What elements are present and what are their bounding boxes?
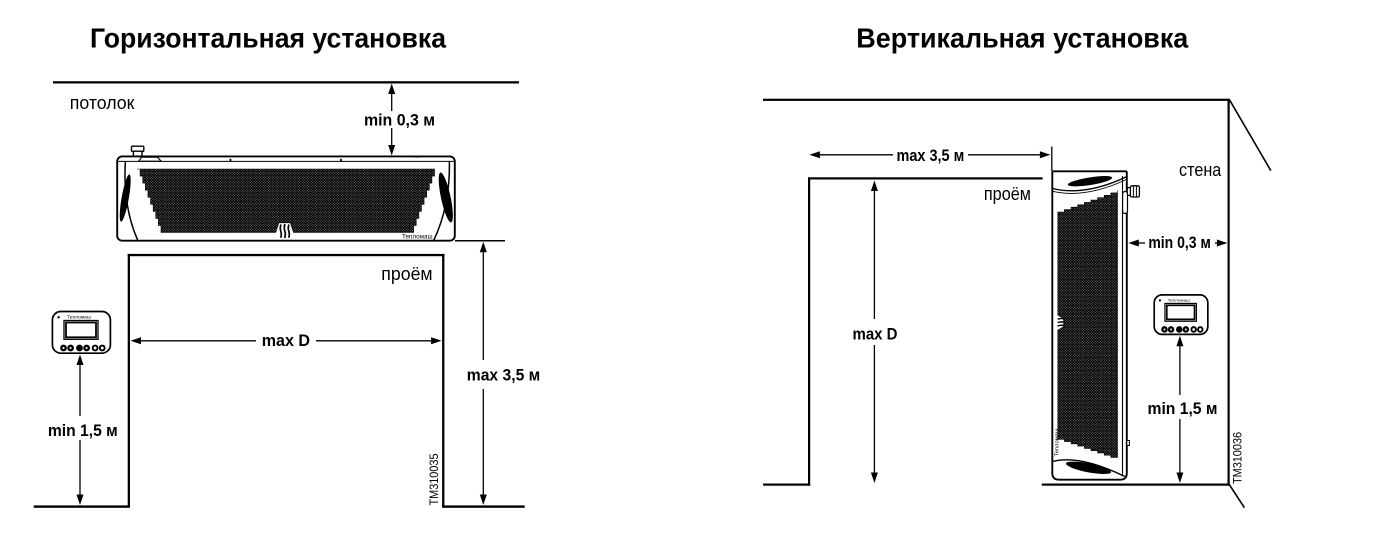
svg-text:потолок: потолок	[70, 92, 135, 113]
svg-text:min 1,5 м: min 1,5 м	[1148, 399, 1218, 418]
svg-text:Вертикальная установка: Вертикальная установка	[856, 23, 1189, 54]
svg-text:min 0,3 м: min 0,3 м	[364, 111, 435, 130]
svg-text:проём: проём	[381, 263, 432, 284]
svg-text:Тепломаш: Тепломаш	[402, 235, 433, 241]
svg-text:ТМ310036: ТМ310036	[1231, 432, 1245, 484]
svg-text:max 3,5 м: max 3,5 м	[467, 365, 541, 384]
svg-text:проём: проём	[984, 183, 1031, 204]
svg-text:min 0,3 м: min 0,3 м	[1148, 233, 1211, 252]
svg-text:Горизонтальная установка: Горизонтальная установка	[90, 23, 447, 54]
svg-text:min 1,5 м: min 1,5 м	[48, 421, 118, 440]
svg-text:max D: max D	[262, 331, 310, 350]
svg-text:Тепломаш: Тепломаш	[1168, 298, 1190, 303]
svg-text:Тепломаш: Тепломаш	[67, 315, 92, 320]
svg-text:max D: max D	[853, 325, 898, 344]
svg-text:ТМ310035: ТМ310035	[427, 453, 441, 505]
svg-text:стена: стена	[1179, 159, 1222, 180]
svg-text:max 3,5 м: max 3,5 м	[897, 146, 965, 165]
svg-text:Тепломаш: Тепломаш	[1054, 429, 1060, 457]
